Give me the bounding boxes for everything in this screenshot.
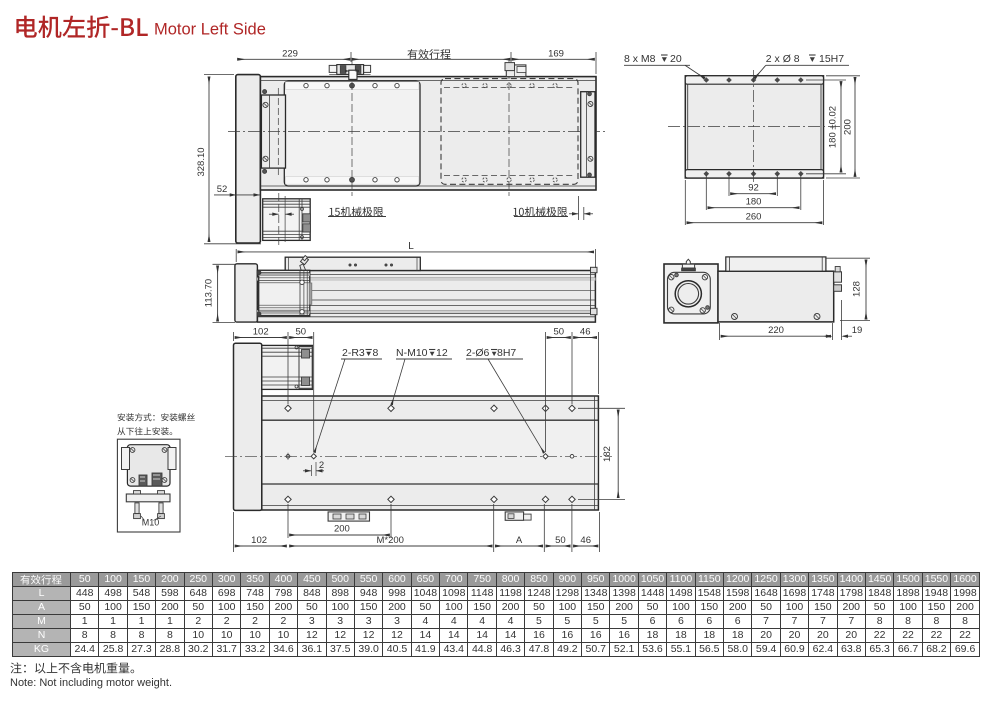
svg-text:Motor Left Side: Motor Left Side [154,21,266,39]
svg-text:2: 2 [319,460,324,471]
svg-text:180: 180 [746,197,762,208]
svg-text:50: 50 [555,535,566,546]
svg-text:2-Ø6: 2-Ø6 [466,347,490,359]
svg-text:46: 46 [580,535,591,546]
svg-text:200: 200 [334,524,350,535]
svg-text:2 x Ø 8: 2 x Ø 8 [766,53,800,65]
svg-text:19: 19 [852,325,863,336]
svg-text:180 ±0.02: 180 ±0.02 [828,106,839,148]
svg-text:102: 102 [251,535,267,546]
svg-text:102: 102 [253,327,269,338]
svg-text:92: 92 [748,183,759,194]
svg-text:260: 260 [746,212,762,223]
svg-text:128: 128 [852,281,863,297]
svg-text:M*200: M*200 [376,535,403,546]
svg-text:328.10: 328.10 [196,147,207,176]
svg-text:8 x M8: 8 x M8 [624,53,656,65]
svg-text:52: 52 [217,184,228,195]
svg-text:15H7: 15H7 [819,53,844,65]
svg-text:169: 169 [548,48,564,59]
svg-text:8: 8 [373,347,379,359]
svg-text:12: 12 [436,347,448,359]
svg-text:A: A [516,535,523,546]
svg-text:200: 200 [843,119,854,135]
svg-text:182: 182 [602,446,613,462]
svg-text:50: 50 [554,327,565,338]
svg-text:113.70: 113.70 [204,279,215,307]
svg-text:20: 20 [670,53,682,65]
svg-text:229: 229 [282,48,298,59]
svg-text:50: 50 [296,327,307,338]
svg-text:N-M10: N-M10 [396,347,428,359]
svg-text:220: 220 [768,325,784,336]
svg-text:8H7: 8H7 [497,347,516,359]
svg-text:L: L [408,241,414,252]
svg-text:2-R3: 2-R3 [342,347,365,359]
svg-text:46: 46 [580,327,591,338]
